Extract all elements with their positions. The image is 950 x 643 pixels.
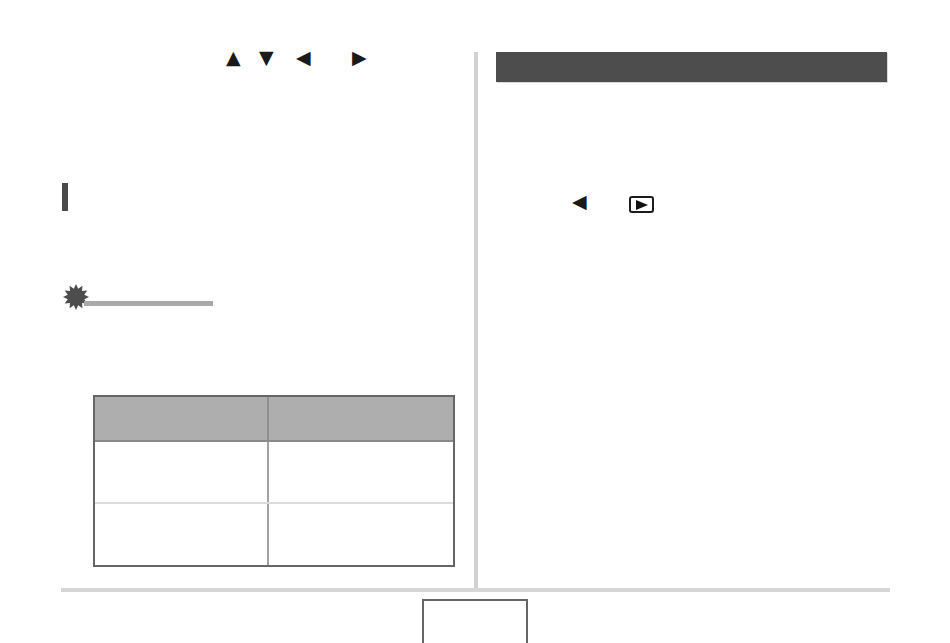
play-triangle-icon: [636, 200, 648, 210]
page-header-bar: [496, 52, 887, 82]
table-header-row: [95, 397, 453, 442]
settings-table: [93, 395, 455, 567]
dpad-right-icon: ▶: [352, 49, 367, 65]
table-header-cell-left: [95, 397, 269, 440]
page-number-box: [422, 599, 528, 643]
table-cell: [269, 442, 453, 502]
table-cell: [269, 504, 453, 565]
section-heading-marker: [62, 183, 68, 211]
dpad-down-icon: ▼: [259, 49, 274, 65]
table-header-cell-right: [269, 397, 453, 440]
table-cell: [95, 504, 269, 565]
table-row: [95, 504, 453, 565]
footer-rule: [61, 588, 890, 592]
manual-page: ▲ ▼ ◀ ▶ ◀: [0, 0, 950, 643]
table-cell: [95, 442, 269, 502]
playback-mode-icon: [629, 196, 654, 213]
important-starburst-icon: [63, 284, 89, 310]
important-rule: [84, 301, 213, 306]
dpad-up-icon: ▲: [226, 49, 241, 65]
nav-left-arrow-icon: ◀: [572, 193, 587, 209]
dpad-left-icon: ◀: [296, 49, 311, 65]
table-row: [95, 442, 453, 504]
column-divider: [474, 52, 478, 588]
